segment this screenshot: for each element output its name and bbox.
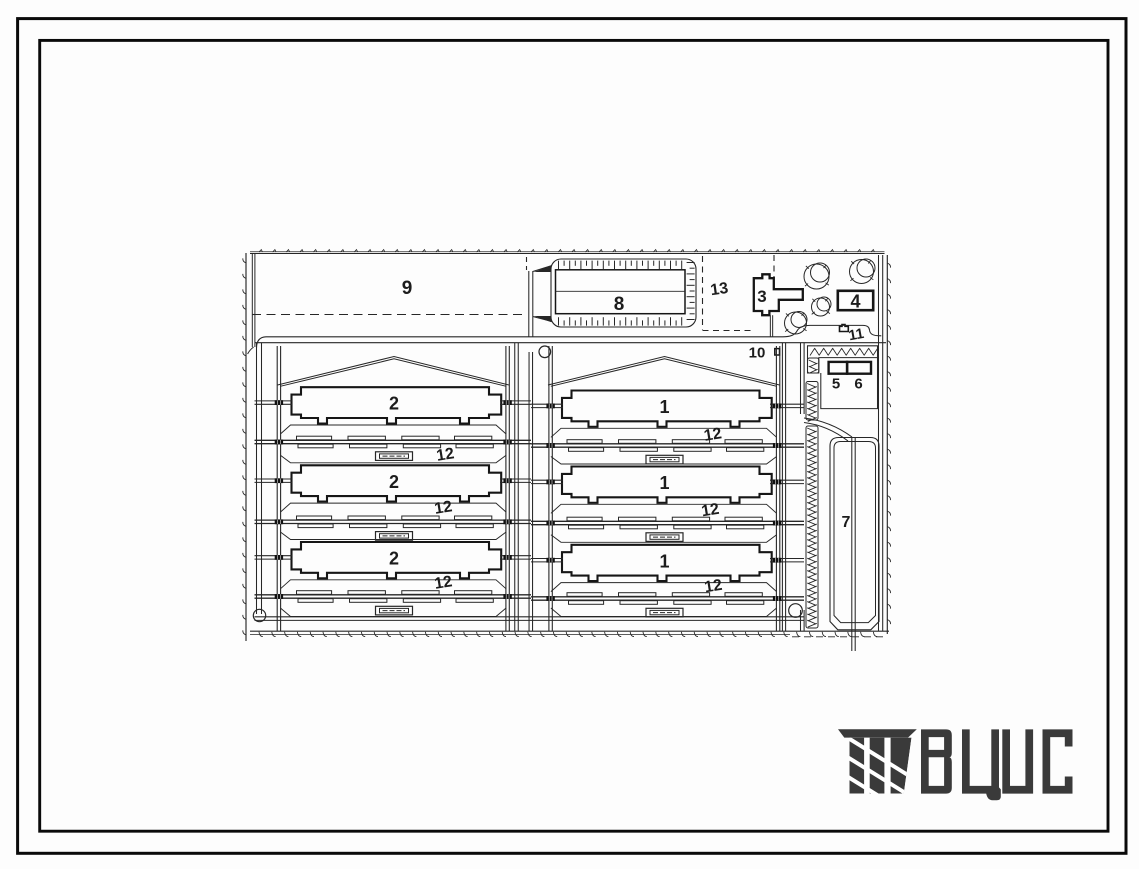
svg-text:4: 4 bbox=[850, 292, 860, 312]
svg-text:11: 11 bbox=[847, 326, 865, 344]
svg-text:5: 5 bbox=[832, 376, 840, 393]
svg-text:1: 1 bbox=[659, 551, 669, 571]
svg-text:12: 12 bbox=[703, 577, 723, 597]
svg-text:12: 12 bbox=[435, 445, 455, 465]
svg-text:12: 12 bbox=[700, 501, 720, 521]
svg-text:9: 9 bbox=[402, 278, 413, 299]
svg-text:12: 12 bbox=[433, 573, 453, 593]
svg-text:13: 13 bbox=[709, 280, 729, 299]
svg-text:10: 10 bbox=[749, 345, 766, 362]
svg-text:2: 2 bbox=[389, 549, 399, 569]
svg-text:2: 2 bbox=[389, 394, 399, 414]
svg-text:6: 6 bbox=[854, 376, 862, 393]
svg-text:12: 12 bbox=[703, 425, 723, 445]
svg-text:1: 1 bbox=[659, 473, 669, 493]
svg-text:7: 7 bbox=[842, 514, 851, 531]
svg-text:8: 8 bbox=[614, 294, 625, 315]
svg-text:1: 1 bbox=[659, 397, 669, 417]
svg-text:2: 2 bbox=[389, 472, 399, 492]
svg-text:3: 3 bbox=[757, 287, 766, 306]
svg-text:12: 12 bbox=[433, 498, 453, 518]
